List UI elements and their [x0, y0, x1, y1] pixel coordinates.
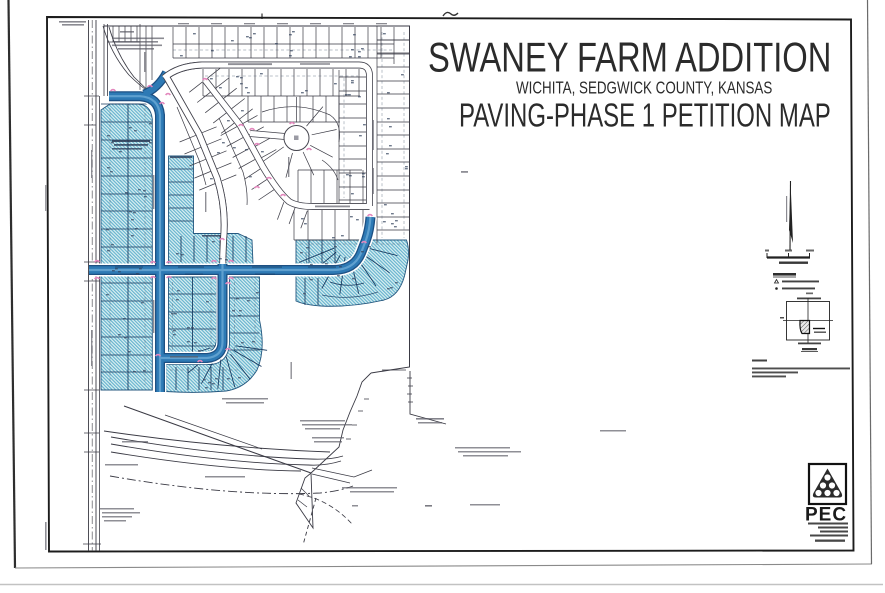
svg-text:SWANEY FARM ADDITION: SWANEY FARM ADDITION	[428, 34, 831, 81]
svg-text:PAVING-PHASE 1 PETITION MAP: PAVING-PHASE 1 PETITION MAP	[459, 98, 831, 135]
svg-text:PEC: PEC	[805, 505, 847, 526]
svg-text:WICHITA, SEDGWICK COUNTY, KANS: WICHITA, SEDGWICK COUNTY, KANSAS	[516, 79, 772, 98]
